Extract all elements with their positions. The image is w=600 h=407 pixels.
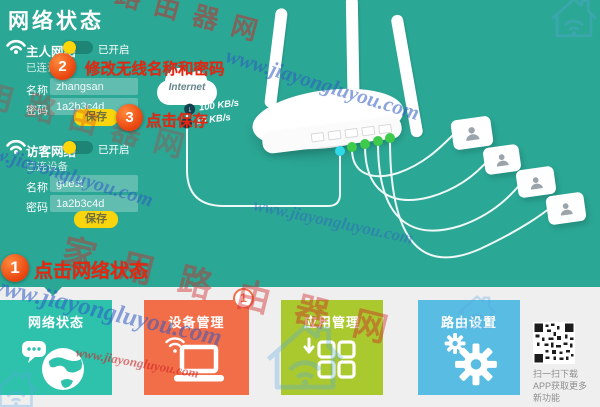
main-network-status: 已开启 [98, 42, 130, 57]
guest-network-toggle[interactable] [63, 141, 93, 154]
connected-device-card [450, 115, 494, 150]
ethernet-port [378, 123, 392, 134]
step3-text: 点击保存 [146, 109, 208, 131]
step3-badge: 3 [116, 104, 143, 131]
guest-name-input[interactable] [50, 175, 138, 192]
main-password-label: 密码 [26, 102, 48, 118]
main-network-toggle[interactable] [63, 41, 93, 54]
router-antenna [264, 8, 288, 109]
guest-network-status: 已开启 [98, 142, 130, 157]
main-name-input[interactable] [50, 78, 138, 95]
step1-text: 点击网络状态 [34, 256, 148, 283]
ethernet-port [344, 127, 358, 138]
user-icon [557, 200, 575, 217]
main-name-label: 名称 [26, 82, 48, 98]
qr-caption-line3: 新功能 [533, 391, 560, 404]
step1-badge: 1 [1, 254, 29, 282]
wan-port-dot [335, 146, 345, 156]
toggle-knob [63, 141, 76, 154]
gear-icon [437, 333, 501, 387]
apps-grid-icon [302, 335, 362, 385]
connected-device-card [515, 165, 557, 198]
tile-device-badge: 1 [233, 288, 254, 309]
user-icon [462, 124, 482, 142]
qr-code [533, 322, 575, 364]
guest-password-input[interactable] [50, 195, 138, 212]
step2-text: 修改无线名称和密码 [85, 57, 225, 79]
tile-device-management[interactable]: 设备管理 [144, 300, 249, 395]
guest-password-label: 密码 [26, 199, 48, 215]
house-wifi-watermark-icon [548, 0, 600, 41]
connected-device-card [482, 144, 521, 176]
wifi-icon [5, 37, 27, 54]
toggle-knob [63, 41, 76, 54]
ethernet-port [311, 132, 325, 143]
selected-tile-pointer [44, 287, 62, 296]
laptop-icon [165, 335, 229, 387]
tile-router-settings[interactable]: 路由设置 [418, 300, 520, 395]
main-save-button[interactable]: 保存 [74, 109, 118, 126]
watermark-url: www.jiayongluyou.com [252, 195, 415, 248]
step2-badge: 2 [49, 53, 76, 80]
guest-save-button[interactable]: 保存 [74, 211, 118, 228]
router-admin-page: 网络状态 主人网络 已开启 已连设备 名称 密码 保存 2 修改无线名称和密码 … [0, 0, 600, 407]
wifi-icon [5, 137, 27, 154]
ethernet-port [327, 129, 341, 140]
guest-name-label: 名称 [26, 179, 48, 195]
tile-app-management[interactable]: 应用管理 [281, 300, 383, 395]
user-icon [493, 151, 511, 168]
user-icon [527, 173, 545, 190]
guest-devices-label: 已连设备 [26, 159, 68, 174]
chat-bubble-icon [22, 341, 46, 363]
lan-line [365, 146, 490, 200]
globe-icon [21, 333, 91, 395]
tile-network-status[interactable]: 网络状态 [0, 300, 112, 395]
lan-line [390, 140, 554, 257]
internet-label: Internet [157, 82, 217, 93]
ethernet-port [361, 125, 375, 136]
connected-device-card [545, 191, 587, 225]
page-title: 网络状态 [8, 5, 104, 35]
